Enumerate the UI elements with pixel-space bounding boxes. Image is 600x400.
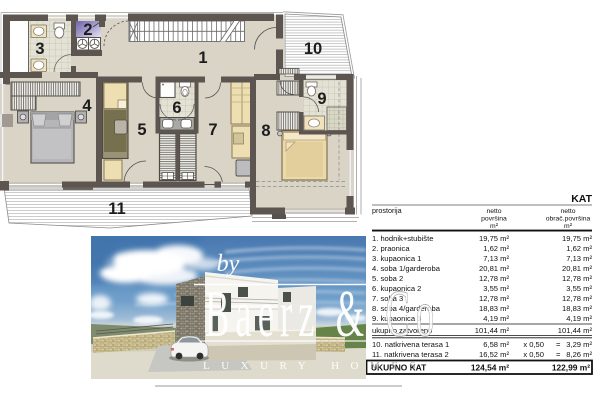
svg-text:1: 1: [198, 49, 207, 67]
svg-text:20,81 m²: 20,81 m²: [479, 264, 509, 273]
svg-text:7,13 m²: 7,13 m²: [483, 254, 509, 263]
svg-text:7: 7: [208, 121, 217, 139]
svg-text:1. hodnik+stubište: 1. hodnik+stubište: [372, 234, 433, 243]
svg-text:x 0,50: x 0,50: [523, 350, 544, 359]
svg-text:12,78 m²: 12,78 m²: [479, 294, 509, 303]
svg-text:m²: m²: [490, 223, 499, 230]
svg-text:20,81 m²: 20,81 m²: [562, 264, 592, 273]
svg-text:12,78 m²: 12,78 m²: [562, 294, 592, 303]
svg-text:2. praonica: 2. praonica: [372, 244, 410, 253]
svg-text:12,78 m²: 12,78 m²: [479, 274, 509, 283]
svg-text:4,19 m²: 4,19 m²: [483, 314, 509, 323]
svg-text:površina: površina: [481, 216, 507, 223]
svg-text:6,58 m²: 6,58 m²: [483, 340, 509, 349]
svg-text:101,44 m²: 101,44 m²: [558, 326, 593, 335]
svg-text:m²: m²: [564, 223, 573, 230]
svg-text:8,26 m²: 8,26 m²: [566, 350, 592, 359]
svg-text:by: by: [217, 251, 240, 277]
svg-text:8: 8: [261, 122, 270, 140]
svg-text:4,19 m²: 4,19 m²: [566, 314, 592, 323]
svg-text:10: 10: [304, 40, 322, 58]
svg-text:11: 11: [108, 200, 125, 218]
svg-text:3. kupaonica 1: 3. kupaonica 1: [372, 254, 421, 263]
svg-text:3,55 m²: 3,55 m²: [483, 284, 509, 293]
svg-text:prostorija: prostorija: [372, 206, 402, 215]
svg-text:122,99 m²: 122,99 m²: [552, 363, 590, 373]
svg-text:=: =: [556, 340, 561, 349]
svg-text:3,55 m²: 3,55 m²: [566, 284, 592, 293]
svg-text:124,54 m²: 124,54 m²: [471, 363, 509, 373]
svg-text:4: 4: [82, 97, 92, 115]
svg-text:19,75 m²: 19,75 m²: [479, 234, 509, 243]
svg-text:18,83 m²: 18,83 m²: [562, 304, 592, 313]
svg-text:obrač.površina: obrač.površina: [546, 216, 591, 223]
svg-text:12,78 m²: 12,78 m²: [562, 274, 592, 283]
svg-text:KAT: KAT: [571, 193, 592, 205]
svg-text:netto: netto: [486, 208, 501, 215]
svg-text:101,44 m²: 101,44 m²: [475, 326, 510, 335]
svg-text:=: =: [556, 350, 561, 359]
svg-text:11. natkrivena terasa 2: 11. natkrivena terasa 2: [372, 350, 449, 359]
svg-text:19,75 m²: 19,75 m²: [562, 234, 592, 243]
svg-text:4. soba 1/garderoba: 4. soba 1/garderoba: [372, 264, 441, 273]
svg-text:5: 5: [137, 121, 146, 139]
svg-text:7,13 m²: 7,13 m²: [566, 254, 592, 263]
svg-text:18,83 m²: 18,83 m²: [479, 304, 509, 313]
svg-text:x 0,50: x 0,50: [523, 340, 544, 349]
svg-text:1,62 m²: 1,62 m²: [483, 244, 509, 253]
svg-text:6: 6: [172, 99, 181, 117]
svg-text:3: 3: [35, 40, 44, 58]
svg-text:2: 2: [83, 21, 92, 39]
svg-text:netto: netto: [560, 208, 575, 215]
svg-text:16,52 m²: 16,52 m²: [479, 350, 509, 359]
svg-text:1,62 m²: 1,62 m²: [566, 244, 592, 253]
svg-text:9: 9: [317, 90, 326, 108]
svg-text:3,29 m²: 3,29 m²: [566, 340, 592, 349]
